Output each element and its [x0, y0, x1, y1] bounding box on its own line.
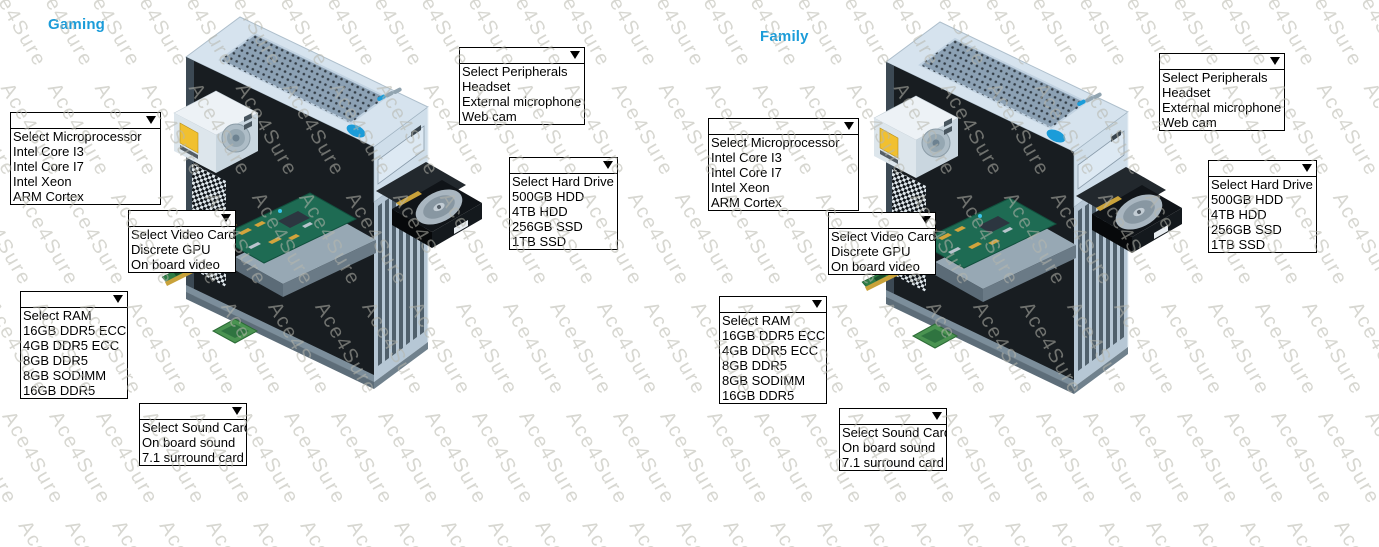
dropdown-hard-drive: Select Hard Drive 500GB HDD 4TB HDD 256G…: [1208, 160, 1317, 253]
chevron-down-icon[interactable]: [146, 116, 156, 124]
dropdown-sound-card: Select Sound Card On board sound 7.1 sur…: [839, 408, 947, 471]
chevron-down-icon[interactable]: [570, 51, 580, 59]
dropdown-item[interactable]: On board video: [829, 259, 935, 274]
dropdown-list: Select Peripherals Headset External micr…: [1160, 70, 1284, 130]
dropdown-list: Select Hard Drive 500GB HDD 4TB HDD 256G…: [1209, 177, 1316, 252]
dropdown-item[interactable]: 500GB HDD: [510, 189, 617, 204]
dropdown-item[interactable]: 1TB SSD: [510, 234, 617, 249]
dropdown-list: Select Sound Card On board sound 7.1 sur…: [140, 420, 246, 465]
dropdown-item[interactable]: 16GB DDR5: [720, 388, 826, 403]
dropdown-header[interactable]: [510, 158, 617, 174]
dropdown-list: Select RAM 16GB DDR5 ECC 4GB DDR5 ECC 8G…: [21, 308, 127, 398]
dropdown-item[interactable]: ARM Cortex: [709, 195, 858, 210]
dropdown-item[interactable]: ARM Cortex: [11, 189, 160, 204]
dropdown-item[interactable]: Select Microprocessor: [11, 129, 160, 144]
dropdown-list: Select Hard Drive 500GB HDD 4TB HDD 256G…: [510, 174, 617, 249]
dropdown-item[interactable]: 1TB SSD: [1209, 237, 1316, 252]
dropdown-header[interactable]: [21, 292, 127, 308]
dropdown-item[interactable]: Discrete GPU: [829, 244, 935, 259]
dropdown-item[interactable]: 16GB DDR5 ECC: [21, 323, 127, 338]
dropdown-item[interactable]: Select Microprocessor: [709, 135, 858, 150]
chevron-down-icon[interactable]: [113, 295, 123, 303]
dropdown-item[interactable]: 8GB DDR5: [21, 353, 127, 368]
dropdown-item[interactable]: Web cam: [1160, 115, 1284, 130]
dropdown-header[interactable]: [11, 113, 160, 129]
dropdown-peripherals: Select Peripherals Headset External micr…: [1159, 53, 1285, 131]
dropdown-list: Select Video Card Discrete GPU On board …: [829, 229, 935, 274]
dropdown-video-card: Select Video Card Discrete GPU On board …: [128, 210, 236, 273]
chevron-down-icon[interactable]: [812, 300, 822, 308]
dropdown-item[interactable]: 4GB DDR5 ECC: [21, 338, 127, 353]
chevron-down-icon[interactable]: [221, 214, 231, 222]
dropdown-list: Select RAM 16GB DDR5 ECC 4GB DDR5 ECC 8G…: [720, 313, 826, 403]
dropdown-item[interactable]: Select Video Card: [829, 229, 935, 244]
dropdown-header[interactable]: [840, 409, 946, 425]
dropdown-item[interactable]: Select Hard Drive: [1209, 177, 1316, 192]
dropdown-item[interactable]: On board sound: [140, 435, 246, 450]
dropdown-sound-card: Select Sound Card On board sound 7.1 sur…: [139, 403, 247, 466]
dropdown-item[interactable]: 4GB DDR5 ECC: [720, 343, 826, 358]
dropdown-item[interactable]: 8GB DDR5: [720, 358, 826, 373]
dropdown-item[interactable]: Select Peripherals: [1160, 70, 1284, 85]
dropdown-item[interactable]: 8GB SODIMM: [720, 373, 826, 388]
dropdown-header[interactable]: [129, 211, 235, 227]
build-label-family: Family: [760, 28, 809, 45]
dropdown-item[interactable]: 7.1 surround card: [840, 455, 946, 470]
dropdown-header[interactable]: [1160, 54, 1284, 70]
dropdown-header[interactable]: [140, 404, 246, 420]
chevron-down-icon[interactable]: [921, 216, 931, 224]
dropdown-ram: Select RAM 16GB DDR5 ECC 4GB DDR5 ECC 8G…: [20, 291, 128, 399]
dropdown-header[interactable]: [709, 119, 858, 135]
dropdown-item[interactable]: Select Hard Drive: [510, 174, 617, 189]
dropdown-item[interactable]: Intel Core I7: [11, 159, 160, 174]
dropdown-item[interactable]: External microphone: [1160, 100, 1284, 115]
dropdown-item[interactable]: On board sound: [840, 440, 946, 455]
chevron-down-icon[interactable]: [232, 407, 242, 415]
dropdown-item[interactable]: Select RAM: [21, 308, 127, 323]
build-label-gaming: Gaming: [48, 16, 105, 33]
dropdown-item[interactable]: 7.1 surround card: [140, 450, 246, 465]
dropdown-header[interactable]: [720, 297, 826, 313]
dropdown-list: Select Sound Card On board sound 7.1 sur…: [840, 425, 946, 470]
dropdown-item[interactable]: 8GB SODIMM: [21, 368, 127, 383]
chevron-down-icon[interactable]: [1302, 164, 1312, 172]
dropdown-video-card: Select Video Card Discrete GPU On board …: [828, 212, 936, 275]
dropdown-item[interactable]: 16GB DDR5 ECC: [720, 328, 826, 343]
dropdown-item[interactable]: 4TB HDD: [510, 204, 617, 219]
dropdown-item[interactable]: External microphone: [460, 94, 584, 109]
dropdown-ram: Select RAM 16GB DDR5 ECC 4GB DDR5 ECC 8G…: [719, 296, 827, 404]
dropdown-peripherals: Select Peripherals Headset External micr…: [459, 47, 585, 125]
dropdown-microprocessor: Select Microprocessor Intel Core I3 Inte…: [708, 118, 859, 211]
dropdown-header[interactable]: [829, 213, 935, 229]
dropdown-item[interactable]: Headset: [1160, 85, 1284, 100]
dropdown-list: Select Microprocessor Intel Core I3 Inte…: [709, 135, 858, 210]
dropdown-item[interactable]: Intel Core I7: [709, 165, 858, 180]
dropdown-item[interactable]: 4TB HDD: [1209, 207, 1316, 222]
dropdown-item[interactable]: Discrete GPU: [129, 242, 235, 257]
dropdown-item[interactable]: Headset: [460, 79, 584, 94]
dropdown-item[interactable]: Intel Xeon: [11, 174, 160, 189]
dropdown-hard-drive: Select Hard Drive 500GB HDD 4TB HDD 256G…: [509, 157, 618, 250]
dropdown-item[interactable]: Select RAM: [720, 313, 826, 328]
dropdown-item[interactable]: Select Sound Card: [840, 425, 946, 440]
dropdown-list: Select Video Card Discrete GPU On board …: [129, 227, 235, 272]
dropdown-list: Select Peripherals Headset External micr…: [460, 64, 584, 124]
chevron-down-icon[interactable]: [1270, 57, 1280, 65]
dropdown-item[interactable]: Web cam: [460, 109, 584, 124]
dropdown-header[interactable]: [1209, 161, 1316, 177]
dropdown-item[interactable]: Intel Xeon: [709, 180, 858, 195]
chevron-down-icon[interactable]: [932, 412, 942, 420]
dropdown-item[interactable]: 500GB HDD: [1209, 192, 1316, 207]
dropdown-item[interactable]: 256GB SSD: [1209, 222, 1316, 237]
watermark-text: Ace4Sure Ace4Sure Ace4Sure Ace4Sure Ace4…: [1295, 0, 1379, 547]
watermark-text: Ace4Sure Ace4Sure Ace4Sure Ace4Sure Ace4…: [1342, 0, 1379, 547]
dropdown-item[interactable]: Select Sound Card: [140, 420, 246, 435]
dropdown-microprocessor: Select Microprocessor Intel Core I3 Inte…: [10, 112, 161, 205]
dropdown-item[interactable]: Intel Core I3: [11, 144, 160, 159]
chevron-down-icon[interactable]: [844, 122, 854, 130]
dropdown-header[interactable]: [460, 48, 584, 64]
dropdown-item[interactable]: 256GB SSD: [510, 219, 617, 234]
stage: Ace4Sure Ace4Sure Ace4Sure Ace4Sure Ace4…: [0, 0, 1379, 547]
dropdown-item[interactable]: Intel Core I3: [709, 150, 858, 165]
chevron-down-icon[interactable]: [603, 161, 613, 169]
dropdown-item[interactable]: Select Peripherals: [460, 64, 584, 79]
dropdown-item[interactable]: Select Video Card: [129, 227, 235, 242]
dropdown-item[interactable]: On board video: [129, 257, 235, 272]
dropdown-item[interactable]: 16GB DDR5: [21, 383, 127, 398]
dropdown-list: Select Microprocessor Intel Core I3 Inte…: [11, 129, 160, 204]
